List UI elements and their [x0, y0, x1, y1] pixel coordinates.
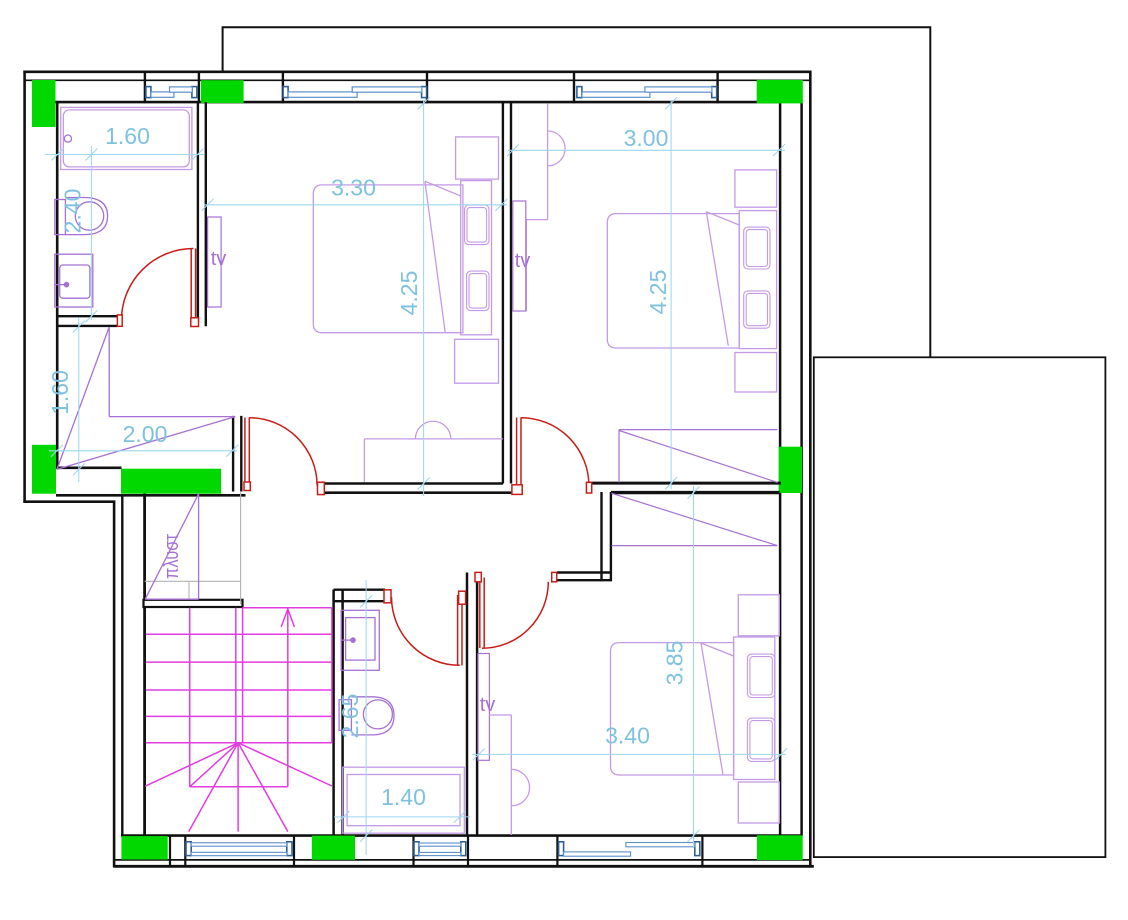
- svg-text:2.00: 2.00: [123, 421, 168, 447]
- svg-text:1.60: 1.60: [105, 123, 150, 149]
- svg-text:3.40: 3.40: [605, 723, 650, 749]
- svg-text:2.65: 2.65: [337, 694, 363, 739]
- svg-text:4.25: 4.25: [396, 271, 422, 316]
- svg-text:1.40: 1.40: [381, 784, 426, 810]
- svg-text:2.40: 2.40: [60, 189, 86, 234]
- svg-text:1.60: 1.60: [47, 370, 73, 415]
- svg-text:tv: tv: [480, 694, 496, 716]
- svg-text:πλυστ: πλυστ: [161, 534, 183, 579]
- svg-text:tv: tv: [211, 248, 227, 270]
- svg-text:4.25: 4.25: [645, 270, 671, 315]
- svg-text:3.00: 3.00: [624, 125, 669, 151]
- svg-text:3.30: 3.30: [331, 175, 376, 201]
- svg-text:tv: tv: [515, 250, 531, 272]
- svg-text:3.85: 3.85: [662, 641, 688, 686]
